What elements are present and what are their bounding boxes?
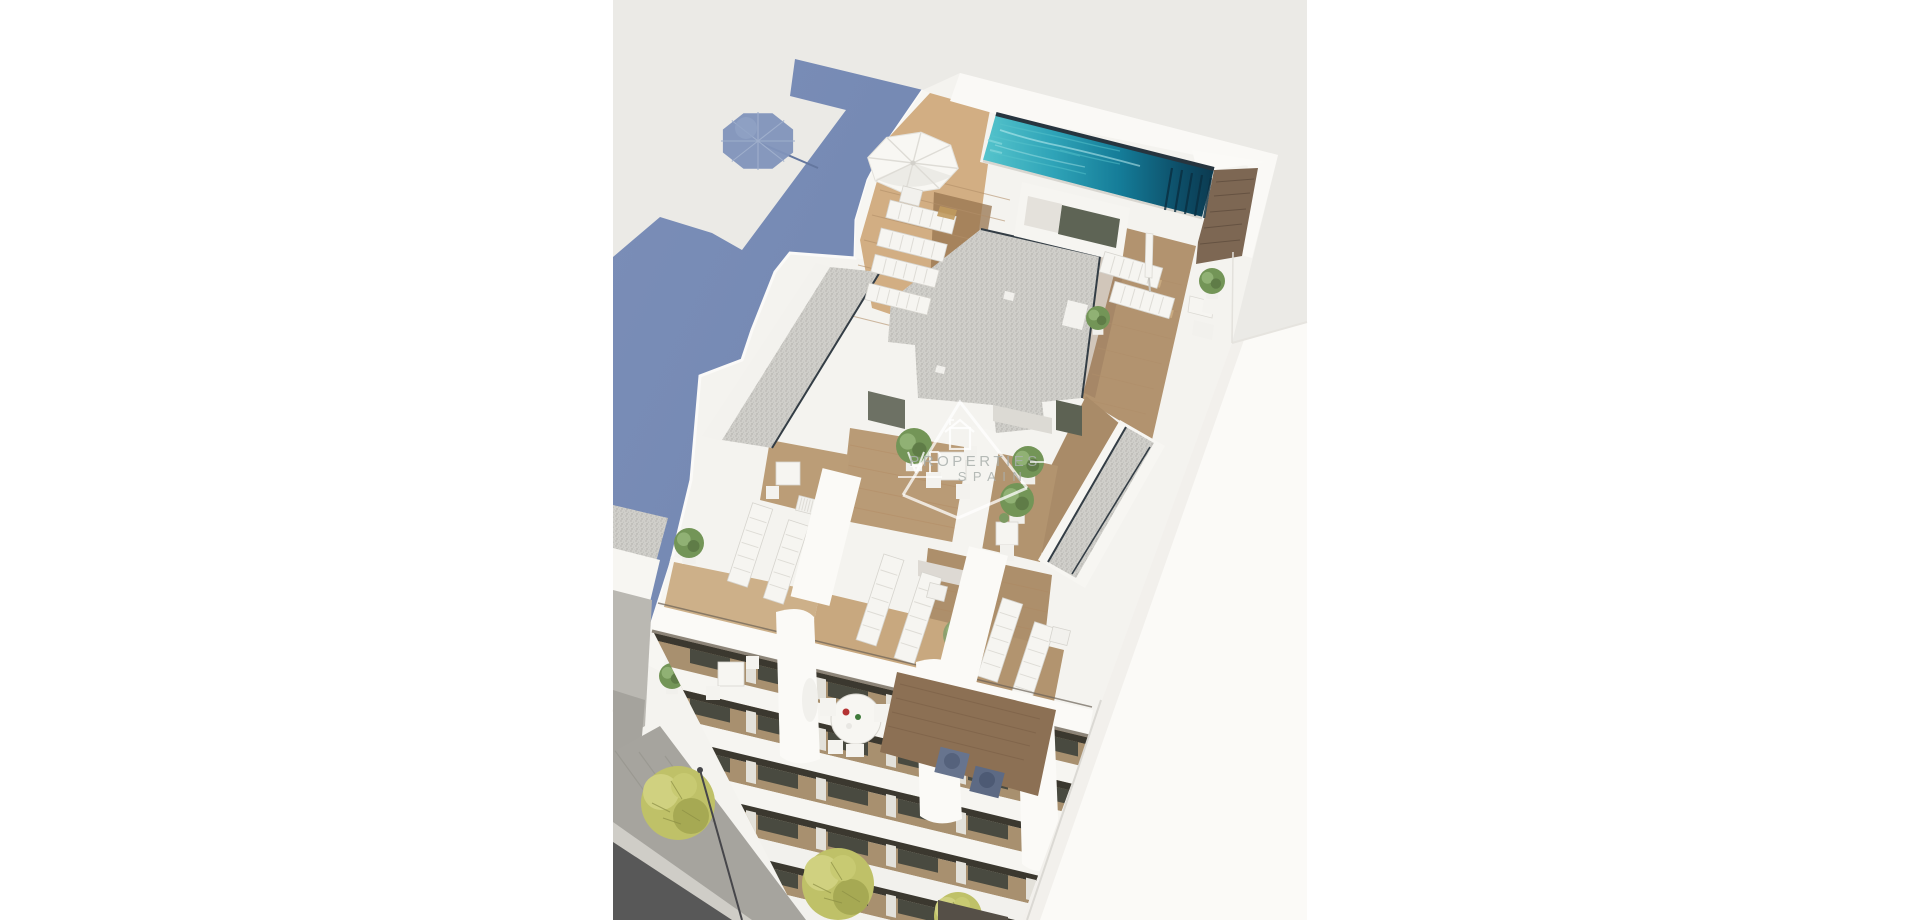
svg-text:SPAIN: SPAIN bbox=[958, 469, 1029, 484]
svg-text:PROPERTIES: PROPERTIES bbox=[909, 453, 1040, 470]
